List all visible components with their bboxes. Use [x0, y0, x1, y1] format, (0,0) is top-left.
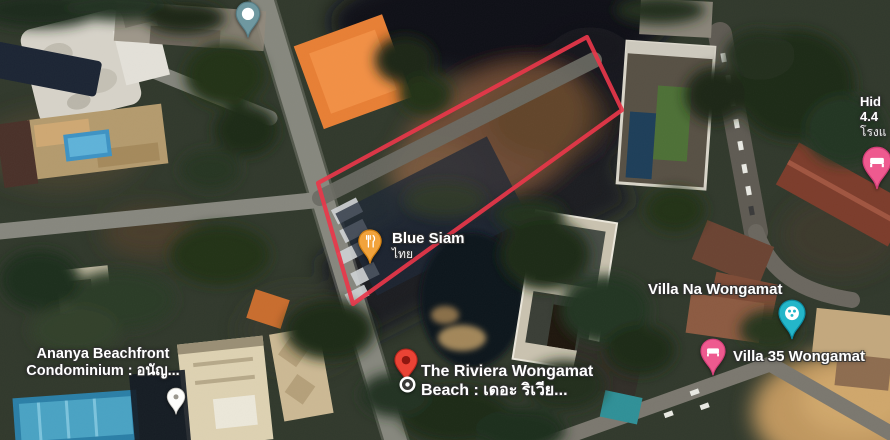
hotel-right-label[interactable]: Hid 4.4 โรงแ: [860, 94, 886, 139]
villa-na-title: Villa Na Wongamat: [648, 281, 782, 298]
villa-35-label[interactable]: Villa 35 Wongamat: [733, 349, 865, 366]
ananya-title-line2: Condominium : อนัญ...: [26, 363, 179, 379]
ananya-label[interactable]: Ananya Beachfront Condominium : อนัญ...: [6, 346, 200, 381]
villa-na-label[interactable]: Villa Na Wongamat: [648, 282, 782, 299]
riviera-title-line1: The Riviera Wongamat: [421, 363, 593, 380]
blue-siam-title: Blue Siam: [392, 230, 465, 247]
hotel-right-type: โรงแ: [860, 125, 886, 139]
restaurant-pin-icon[interactable]: [357, 229, 383, 270]
blue-siam-label[interactable]: Blue Siam ไทย: [392, 231, 465, 261]
villa-35-title: Villa 35 Wongamat: [733, 348, 865, 365]
spa-pin-icon[interactable]: [777, 299, 807, 346]
hotel-right-name: Hid: [860, 94, 881, 109]
hotel-right-rating: 4.4: [860, 109, 878, 124]
ananya-title-line1: Ananya Beachfront: [37, 346, 170, 362]
riviera-label[interactable]: The Riviera Wongamat Beach : เดอะ ริเวีย…: [421, 363, 593, 401]
location-ring-icon: [398, 375, 417, 399]
blue-siam-subtitle: ไทย: [392, 248, 465, 261]
lodging-pin-icon[interactable]: [699, 338, 727, 382]
white-poi-pin-icon[interactable]: [166, 387, 186, 421]
generic-poi-pin-icon[interactable]: [234, 1, 262, 44]
lodging-pin-icon-partial[interactable]: [861, 146, 890, 196]
satellite-map[interactable]: Blue Siam ไทย The Riviera Wongamat Beach…: [0, 0, 890, 440]
riviera-title-line2: Beach : เดอะ ริเวีย...: [421, 382, 568, 399]
